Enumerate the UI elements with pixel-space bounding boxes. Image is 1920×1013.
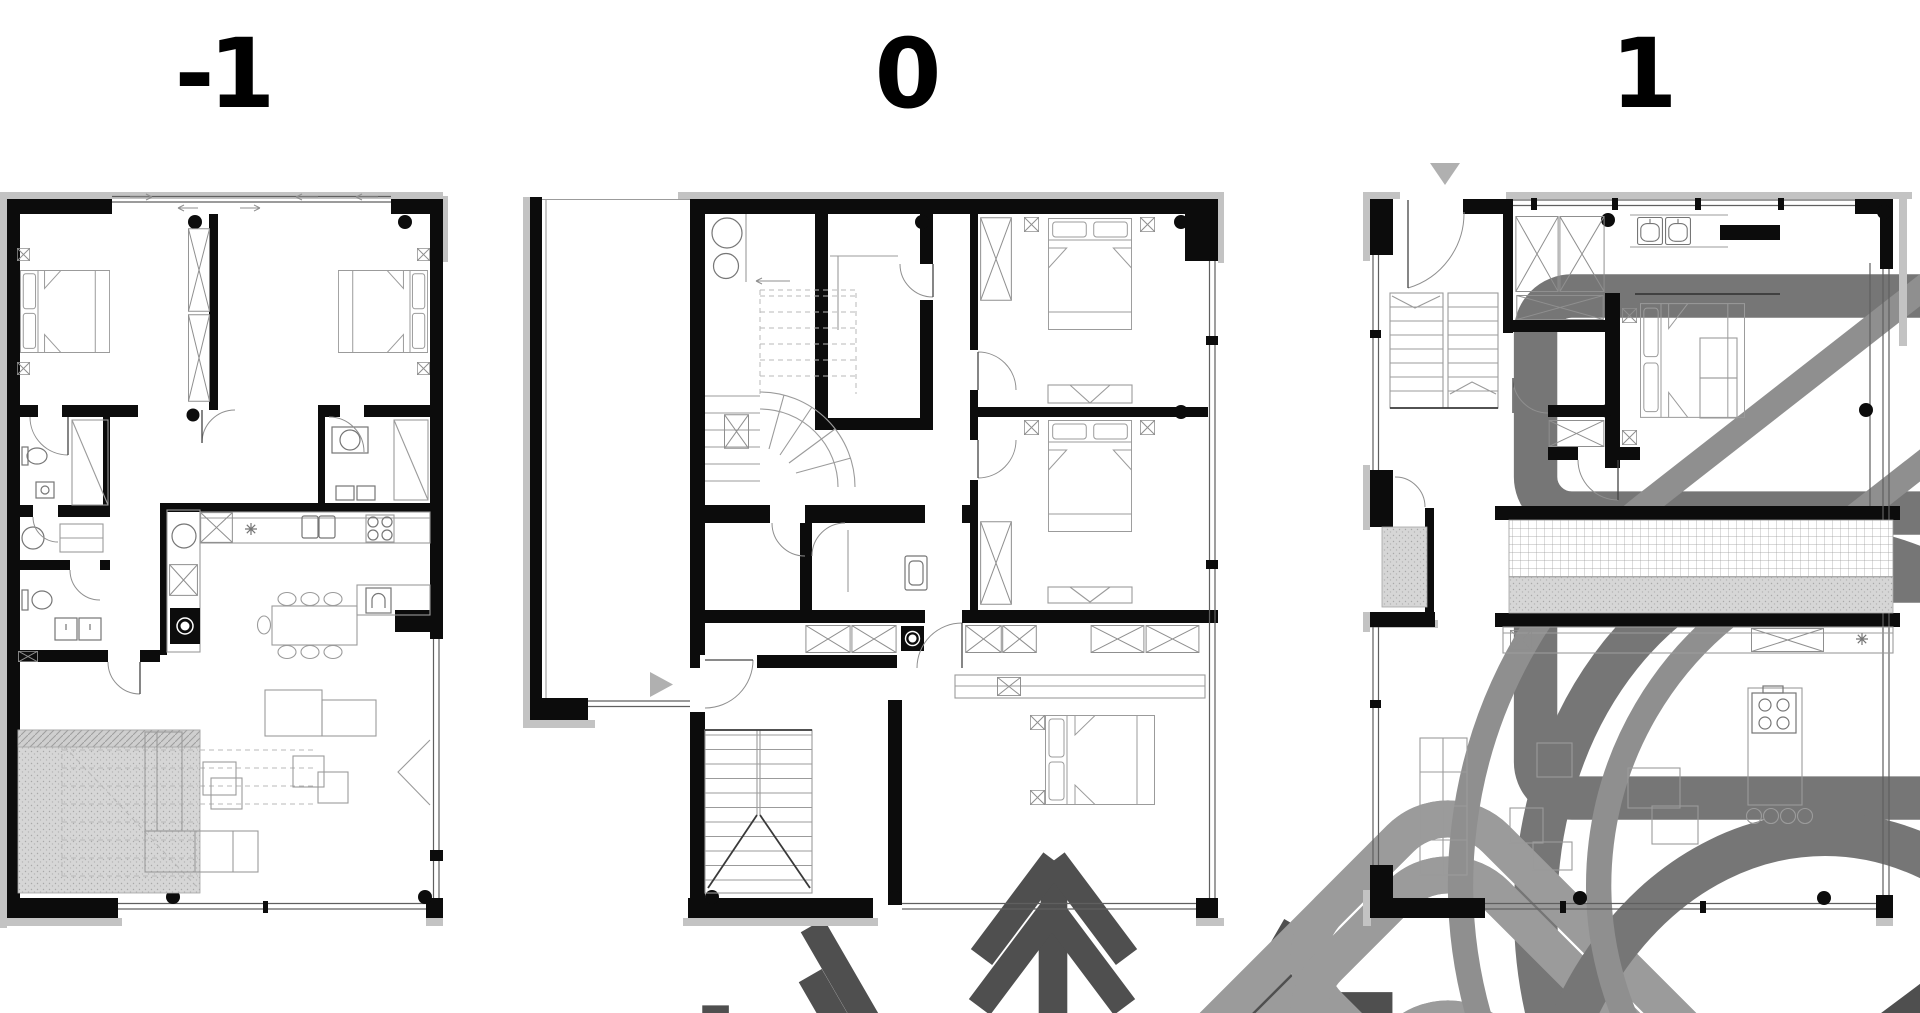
bedrooms — [17, 229, 429, 401]
entry-arrow-icon — [1430, 163, 1460, 185]
bathrooms — [18, 420, 428, 662]
nightstand-icon — [1140, 420, 1154, 434]
wardrobe — [981, 218, 1012, 301]
windows — [542, 199, 1218, 909]
nightstand-icon — [1024, 217, 1038, 231]
plans-drawing — [0, 0, 1920, 1013]
nightstand-icon — [1030, 790, 1044, 804]
star-symbol — [1856, 633, 1868, 645]
bed — [1640, 304, 1744, 418]
curved-staircase — [705, 290, 856, 487]
bed — [338, 270, 427, 352]
shaft — [725, 415, 749, 449]
nightstand-icon — [417, 248, 429, 260]
entry-hall — [712, 214, 790, 284]
nightstand-icon — [1024, 420, 1038, 434]
straight-staircase — [705, 730, 812, 893]
walls — [530, 197, 1218, 918]
bed — [20, 270, 109, 352]
columns — [705, 215, 1188, 905]
kitchen — [167, 510, 430, 659]
nightstand-icon — [1140, 217, 1154, 231]
corridor-wardrobes — [806, 626, 1199, 653]
bathtub — [1909, 0, 1920, 891]
skylight-grid — [1509, 520, 1893, 577]
entry-arrow-icon — [650, 672, 673, 697]
cabinet — [201, 513, 233, 543]
columns — [166, 215, 432, 904]
floor-plans-page: -1 0 1 — [0, 0, 1920, 1013]
bed — [1048, 421, 1131, 532]
sink — [1666, 217, 1691, 244]
nightstand-icon — [1030, 715, 1044, 729]
doors — [705, 264, 1016, 708]
bed — [1046, 716, 1155, 805]
armchair — [875, 991, 1920, 1013]
bed — [1048, 219, 1131, 330]
staircase — [1390, 293, 1498, 408]
wardrobe — [188, 229, 209, 312]
nightstand-icon — [1622, 430, 1636, 444]
cabinet — [170, 565, 198, 596]
dining-table — [272, 606, 357, 645]
nightstand-icon — [417, 362, 429, 374]
shadow-bands — [523, 192, 1224, 926]
star-symbol — [245, 523, 257, 535]
wardrobe — [981, 522, 1012, 605]
sink — [1638, 217, 1663, 244]
cabinet — [1752, 628, 1824, 651]
plan-level-minus-1 — [0, 192, 1537, 1013]
wardrobe — [188, 315, 209, 401]
